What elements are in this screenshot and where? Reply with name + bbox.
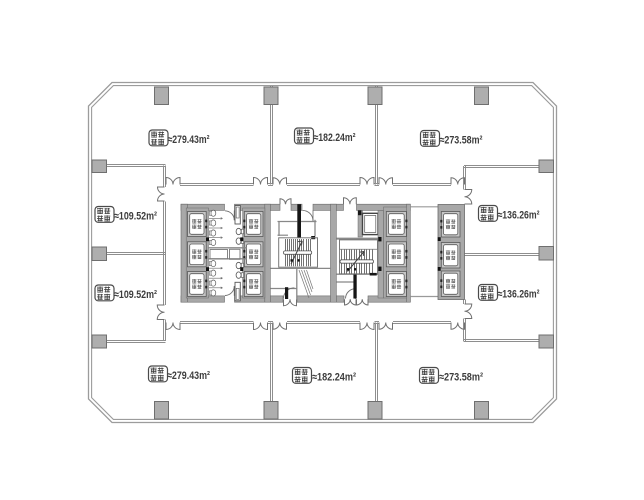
svg-text:≈109.52m²: ≈109.52m² — [114, 289, 157, 301]
svg-text:≈279.43m²: ≈279.43m² — [168, 134, 210, 146]
svg-text:≈109.52m²: ≈109.52m² — [114, 210, 157, 222]
svg-text:≈273.58m²: ≈273.58m² — [439, 371, 483, 383]
svg-text:≈273.58m²: ≈273.58m² — [440, 134, 483, 146]
svg-text:≈182.24m²: ≈182.24m² — [314, 132, 356, 144]
svg-text:≈136.26m²: ≈136.26m² — [498, 288, 540, 300]
svg-text:≈136.26m²: ≈136.26m² — [498, 209, 540, 221]
svg-text:≈279.43m²: ≈279.43m² — [167, 370, 210, 382]
svg-text:≈182.24m²: ≈182.24m² — [312, 371, 356, 383]
